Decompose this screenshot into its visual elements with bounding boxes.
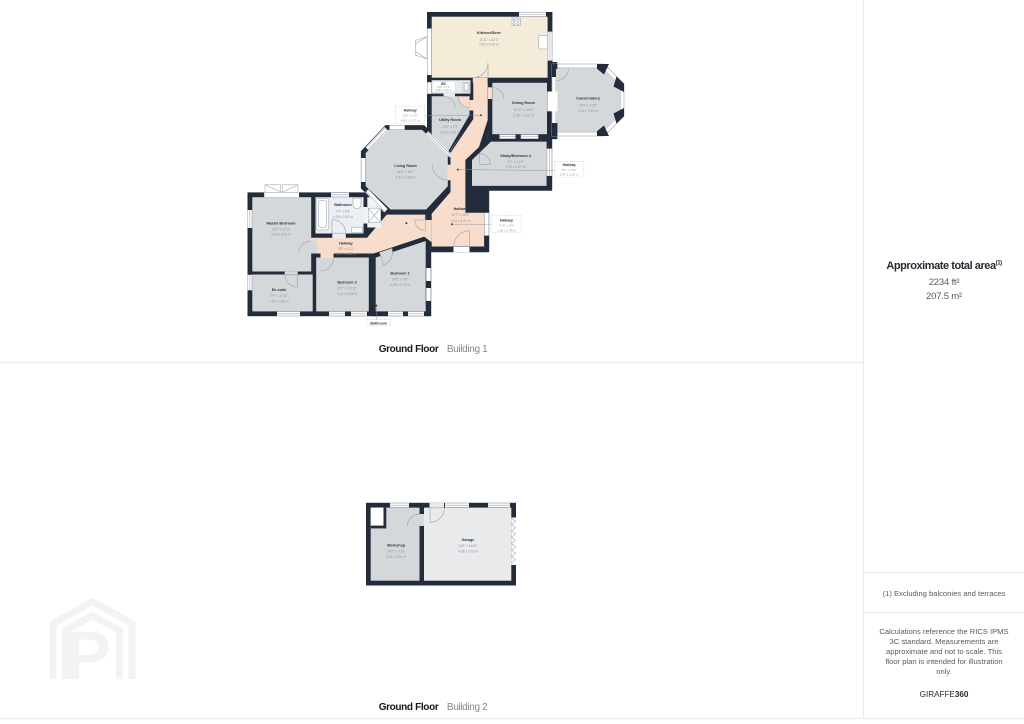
svg-text:14'5" x 9'8": 14'5" x 9'8" [392, 278, 409, 282]
svg-text:7'9" x 11'11": 7'9" x 11'11" [270, 294, 288, 298]
svg-text:4.62 x 1.17 m: 4.62 x 1.17 m [401, 118, 420, 122]
svg-text:Conservatory: Conservatory [576, 97, 601, 101]
svg-text:4.24 x 3.01 m: 4.24 x 3.01 m [386, 555, 406, 559]
svg-text:4.40 x 2.72 m: 4.40 x 2.72 m [390, 283, 410, 287]
svg-text:P: P [64, 617, 110, 682]
svg-text:Hallway: Hallway [563, 163, 576, 167]
svg-text:13'1" x 3'9": 13'1" x 3'9" [403, 114, 418, 118]
svg-text:1.15 x 3.66 m: 1.15 x 3.66 m [336, 252, 356, 256]
svg-text:3.63 x 6.90 m: 3.63 x 6.90 m [479, 43, 499, 47]
svg-text:3.14 x 2.22 m: 3.14 x 2.22 m [440, 131, 460, 135]
svg-text:10'9" x 10'6": 10'9" x 10'6" [579, 104, 598, 108]
svg-text:2'10" x 3'9": 2'10" x 3'9" [499, 224, 514, 228]
svg-text:Hallway: Hallway [454, 207, 469, 211]
svg-text:3.24 x 3.21 m: 3.24 x 3.21 m [451, 219, 471, 223]
svg-text:Hallway: Hallway [339, 241, 354, 245]
svg-text:4.90 x 4.93 m: 4.90 x 4.93 m [396, 175, 416, 179]
svg-text:2.39 x 3.64 m: 2.39 x 3.64 m [269, 300, 289, 304]
svg-text:Study/Bedroom 4: Study/Bedroom 4 [500, 154, 531, 158]
svg-text:Bedroom 2: Bedroom 2 [390, 272, 409, 276]
svg-text:2.93 x 4.37 m: 2.93 x 4.37 m [506, 165, 526, 169]
svg-text:9'7" x 14'4": 9'7" x 14'4" [507, 160, 524, 164]
svg-text:3.24 x 3.33 m: 3.24 x 3.33 m [337, 292, 357, 296]
svg-text:Bathroom: Bathroom [370, 321, 387, 325]
svg-text:Utility Room: Utility Room [439, 118, 461, 122]
svg-text:3'9" x 11'1": 3'9" x 11'1" [338, 247, 355, 251]
svg-text:15'5" x 16'1": 15'5" x 16'1" [396, 170, 415, 174]
svg-text:En-suite: En-suite [272, 288, 287, 292]
svg-text:Hallway: Hallway [500, 219, 513, 223]
svg-text:Dining Room: Dining Room [512, 101, 536, 105]
svg-text:14'0" x 16'11": 14'0" x 16'11" [458, 544, 478, 548]
svg-text:10'10" x 10'6": 10'10" x 10'6" [514, 108, 535, 112]
svg-text:14'0" x 9'10": 14'0" x 9'10" [387, 550, 406, 554]
svg-text:7'4" x 6'9": 7'4" x 6'9" [336, 210, 351, 214]
svg-text:10'2" x 7'3": 10'2" x 7'3" [442, 125, 459, 129]
svg-text:2.26 x 2.02 m: 2.26 x 2.02 m [333, 215, 353, 219]
svg-text:14'9" x 11'11": 14'9" x 11'11" [271, 227, 291, 231]
svg-text:3.29 x 3.19 m: 3.29 x 3.19 m [578, 109, 598, 113]
svg-text:Bedroom 3: Bedroom 3 [337, 281, 356, 285]
svg-text:Hallway: Hallway [404, 109, 417, 113]
svg-text:Kitchen/Diner: Kitchen/Diner [477, 31, 502, 35]
svg-text:Bathroom: Bathroom [334, 203, 352, 207]
svg-text:5'1" x 3'11": 5'1" x 3'11" [562, 168, 577, 172]
svg-text:11'11" x 22'1": 11'11" x 22'1" [479, 38, 499, 42]
svg-text:4.28 x 5.16 m: 4.28 x 5.16 m [458, 550, 478, 554]
svg-text:Living Room: Living Room [394, 164, 417, 168]
svg-text:1.35 x 0.94 m: 1.35 x 0.94 m [497, 229, 516, 233]
svg-text:Garage: Garage [462, 538, 475, 542]
svg-text:10'7" x 10'11": 10'7" x 10'11" [337, 287, 357, 291]
svg-text:4.49 x 3.64 m: 4.49 x 3.64 m [271, 233, 291, 237]
svg-text:Master Bedroom: Master Bedroom [266, 221, 296, 225]
svg-text:1.57 x 1.20 m: 1.57 x 1.20 m [560, 173, 579, 177]
svg-text:0.88 x 2.21 m: 0.88 x 2.21 m [435, 88, 452, 92]
svg-text:3.30 x 3.22 m: 3.30 x 3.22 m [514, 114, 534, 118]
svg-text:Workshop: Workshop [387, 544, 406, 548]
svg-text:10'7" x 10'6": 10'7" x 10'6" [451, 213, 470, 217]
